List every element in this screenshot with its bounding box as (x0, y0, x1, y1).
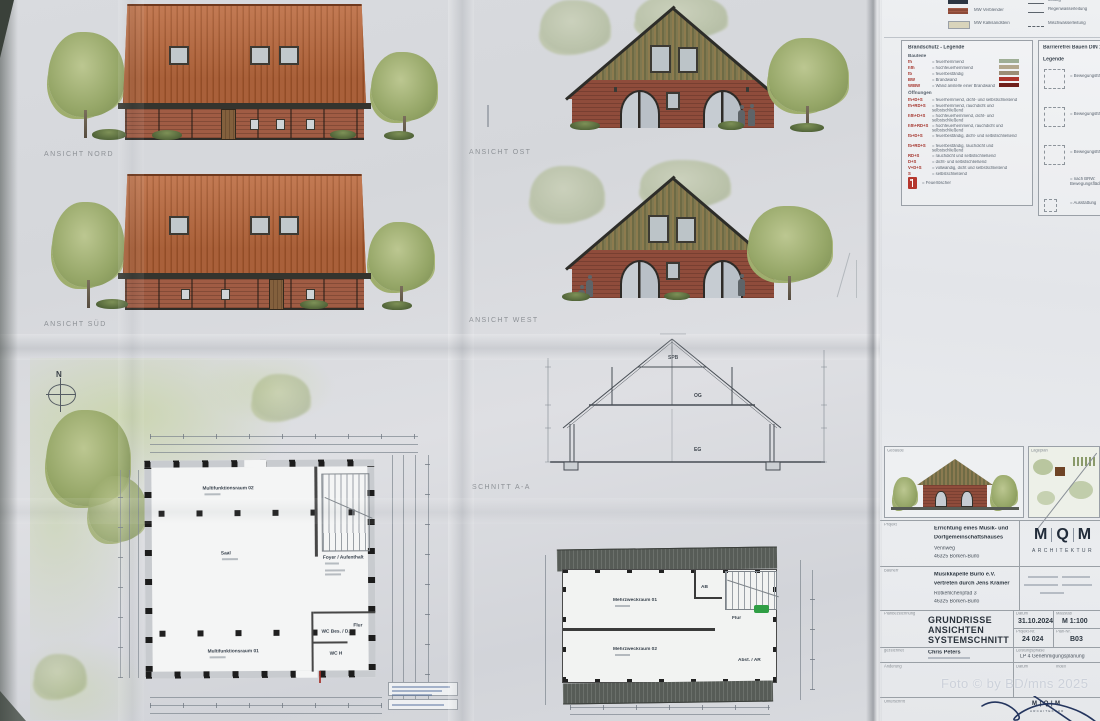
siteplan-preview: Lageplan (1028, 446, 1100, 518)
roof-band (563, 681, 773, 705)
roof-window (250, 46, 270, 65)
pipe-label: Regenwasserleitung (1048, 7, 1085, 12)
material-label: MW Kalksandstein (974, 21, 1010, 25)
blurred-contact-text (1028, 576, 1058, 578)
room-label: Multifunktionsraum 01 (208, 649, 259, 654)
north-arrow-icon: N (46, 370, 80, 416)
room-label: Multifunktionsraum 02 (202, 486, 253, 491)
ground-line (470, 298, 870, 307)
stairs-icon (725, 571, 777, 610)
roof-band (557, 546, 777, 571)
date-value: 31.10.2024 (1018, 618, 1053, 625)
tree-icon (748, 206, 832, 300)
room-label: Mehrzweckraum 02 (613, 647, 657, 652)
wall-lamp-icon (746, 87, 749, 92)
section-level-og: OG (694, 393, 702, 399)
material-swatch (948, 8, 968, 14)
room-label: AB (701, 585, 708, 590)
fire-code: fb (908, 72, 926, 76)
ground-line (470, 128, 866, 137)
building-preview: Gebäude (884, 446, 1024, 518)
building-facade-north (123, 4, 366, 141)
room-label: Flur (732, 616, 741, 621)
paper-fold (448, 0, 474, 721)
elevation-south: ANSICHT SÜD (0, 170, 460, 335)
metal-roof (123, 174, 366, 273)
project-line: Errichtung eines Musik- und (934, 526, 1008, 532)
room-label: Mehrzweckraum 01 (613, 598, 657, 603)
material-swatch (948, 0, 968, 4)
elevation-label-south: ANSICHT SÜD (44, 321, 107, 328)
roof-window (279, 216, 299, 235)
project-line: Dorfgemeinschaftshauses (934, 535, 1003, 541)
plan-title-line: GRUNDRISSE (928, 615, 992, 625)
gable-window (678, 47, 698, 73)
scale-value: M 1:100 (1062, 618, 1088, 625)
gable-window (650, 45, 671, 73)
blurred-email-text (928, 657, 970, 659)
plan-title-line: ANSICHTEN (928, 625, 984, 635)
client-line: Rotkehlchenpfad 3 (934, 591, 977, 596)
pipe-label: Mischwasserleitung (1048, 21, 1085, 26)
person-silhouette (748, 109, 755, 126)
phase-value: LP 4 Genehmigungsplanung (1020, 654, 1085, 659)
building-facade-south (123, 174, 366, 311)
room-label: Saal (221, 551, 231, 556)
person-silhouette (738, 279, 745, 296)
entrance-door (221, 109, 236, 140)
gable-window (676, 217, 696, 243)
sheet-edge (866, 0, 882, 721)
room-label: WC Bes. / D. (321, 629, 349, 634)
fire-legend-title: Brandschutz - Legende (908, 45, 964, 50)
tree-icon (368, 222, 434, 308)
material-swatch (948, 21, 970, 29)
brick-wall (125, 279, 364, 310)
room-label: Foyer / Aufenthalt (323, 555, 364, 560)
room-label: WC H (330, 651, 343, 656)
elevation-label-east: ANSICHT OST (469, 149, 531, 156)
material-label: MW Verblender (974, 8, 1004, 12)
tree-icon (48, 32, 124, 138)
plan-title-line: SYSTEMSCHNITT (928, 635, 1009, 645)
fire-code: hfh (908, 66, 926, 70)
section-label: SCHNITT A-A (472, 484, 531, 491)
roof-window (250, 216, 270, 235)
fire-code: BW (908, 78, 926, 82)
entrance-door (269, 279, 284, 310)
project-line: Vennweg (934, 546, 955, 551)
client-line: Musikkapelle Burlo e.V. (934, 572, 995, 578)
roof-window (169, 216, 189, 235)
accessibility-legend-title: Barrierefrei Bauen DIN 18040-2 (1043, 45, 1100, 51)
wall-lamp-icon (614, 87, 617, 92)
fire-code: fh (908, 60, 926, 64)
floor-plan-og: Mehrzweckraum 01 Mehrzweckraum 02 AB Flu… (540, 540, 840, 721)
mqm-logo: M Q M (1034, 526, 1091, 544)
pipe-label: leitung (1048, 0, 1061, 2)
elevation-north: ANSICHT NORD (0, 0, 460, 165)
room-label: Flur (353, 623, 362, 628)
accessibility-legend: Barrierefrei Bauen DIN 18040-2 Legende =… (1038, 40, 1100, 216)
fire-code: W/BW (908, 84, 926, 88)
roof-window (169, 46, 189, 65)
elevation-label-north: ANSICHT NORD (44, 151, 114, 158)
material-legend: MW Verblender MW Kalksandstein leitung R… (884, 0, 1100, 38)
tree-icon (768, 38, 848, 130)
building-facade-east (558, 2, 788, 138)
drawn-by: Chris Peters (928, 650, 961, 656)
photographed-architectural-plan: ANSICHT NORD ANSICHT SÜD (0, 0, 1100, 721)
room-label: Abst. / AR (738, 658, 761, 663)
project-no-value: 24 024 (1022, 636, 1043, 643)
fire-extinguisher-icon (908, 177, 917, 189)
tree-icon (52, 202, 124, 308)
project-line: 46325 Borken-Burlo (934, 554, 979, 559)
roof-window (279, 46, 299, 65)
ground-line (15, 137, 443, 146)
paper-fold (0, 334, 880, 360)
elevation-label-west: ANSICHT WEST (469, 317, 539, 324)
escape-route-sign (754, 605, 769, 613)
client-line: 46325 Borken-Burlo (934, 599, 979, 604)
client-line: vertreten durch Jens Krämer (934, 581, 1009, 587)
section-level-eg: EG (694, 447, 701, 453)
plan-no-value: B03 (1070, 636, 1083, 643)
photo-credit: Foto © by BD/mns 2025 (941, 676, 1088, 691)
elevation-west: ANSICHT WEST (460, 170, 870, 330)
ground-line (15, 307, 443, 316)
metal-roof (123, 4, 366, 103)
mqm-logo-subtitle: ARCHITEKTUR (1032, 548, 1094, 554)
floor-plan-eg: Multifunktionsraum 02 Saal Foyer / Aufen… (144, 459, 376, 679)
fire-protection-legend: Brandschutz - Legende Bauteile fh= feuer… (901, 40, 1033, 206)
elevation-east: ANSICHT OST (460, 0, 870, 165)
signature (976, 696, 1100, 721)
tree-icon (371, 52, 437, 138)
gable-window (648, 215, 669, 243)
